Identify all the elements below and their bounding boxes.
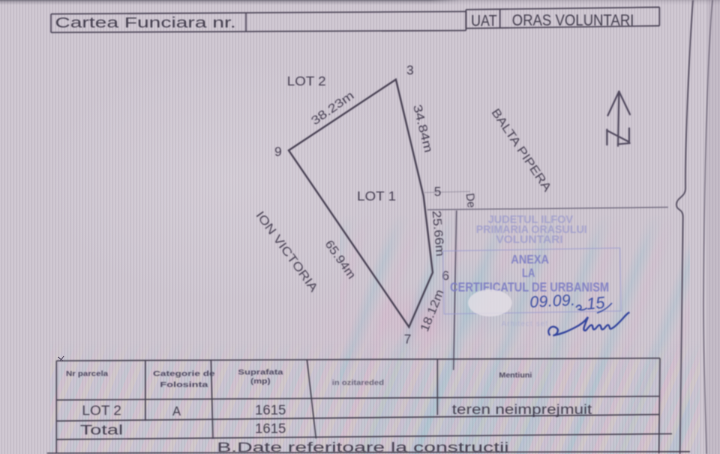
svg-text:Total: Total xyxy=(80,423,123,438)
svg-text:VOLUNTARI: VOLUNTARI xyxy=(496,234,563,246)
svg-text:LOT 1: LOT 1 xyxy=(357,190,396,204)
svg-text:LOT 2: LOT 2 xyxy=(82,403,122,418)
svg-text:LA: LA xyxy=(522,266,535,280)
svg-text:18.12m: 18.12m xyxy=(417,287,446,333)
svg-text:Nr parcela: Nr parcela xyxy=(66,369,109,378)
svg-text:Categorie de: Categorie de xyxy=(153,369,215,378)
svg-text:34.84m: 34.84m xyxy=(410,103,435,154)
svg-text:3: 3 xyxy=(407,63,414,78)
svg-text:Suprafata: Suprafata xyxy=(238,368,284,377)
svg-text:Mentiuni: Mentiuni xyxy=(499,371,532,380)
svg-text:Cartea Funciara nr.: Cartea Funciara nr. xyxy=(55,15,236,32)
svg-text:teren neimprejmuit: teren neimprejmuit xyxy=(452,402,592,417)
svg-text:ANEXA: ANEXA xyxy=(511,253,549,267)
svg-text:5: 5 xyxy=(434,184,441,199)
svg-text:1615: 1615 xyxy=(255,421,286,436)
svg-text:CERTIFICATUL DE URBANISM: CERTIFICATUL DE URBANISM xyxy=(450,281,609,295)
svg-text:Arhitect sef: Arhitect sef xyxy=(501,321,548,328)
svg-text:9: 9 xyxy=(275,144,282,159)
svg-text:B.Date referitoare la construc: B.Date referitoare la constructii xyxy=(217,440,509,454)
svg-text:UAT: UAT xyxy=(471,13,497,30)
svg-text:Folosinta: Folosinta xyxy=(160,380,209,389)
svg-text:ORAS VOLUNTARI: ORAS VOLUNTARI xyxy=(512,13,634,30)
svg-text:09.09.: 09.09. xyxy=(529,292,576,311)
svg-text:De: De xyxy=(463,193,477,209)
svg-text:A: A xyxy=(173,405,182,419)
svg-text:LOT 2: LOT 2 xyxy=(287,75,326,89)
svg-text:25.66m: 25.66m xyxy=(430,210,448,257)
svg-text:BALTA PIPERA: BALTA PIPERA xyxy=(489,106,555,194)
svg-text:in ozitareded: in ozitareded xyxy=(332,378,384,387)
svg-text:7: 7 xyxy=(404,332,411,347)
svg-text:ION VICTORIA: ION VICTORIA xyxy=(253,209,321,295)
svg-text:(mp): (mp) xyxy=(251,377,272,386)
svg-text:1615: 1615 xyxy=(255,403,286,418)
